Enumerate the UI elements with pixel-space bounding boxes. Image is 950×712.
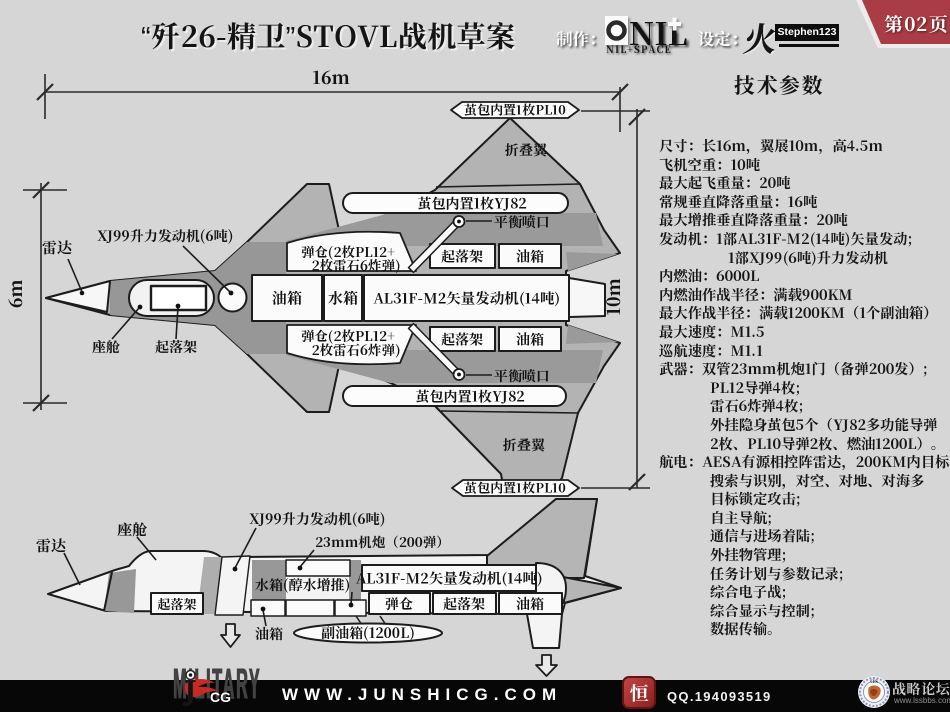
svg-text:XJ99升力发动机(6吨): XJ99升力发动机(6吨) — [249, 509, 385, 529]
svg-text:23mm机炮（200弹）: 23mm机炮（200弹） — [315, 531, 450, 551]
svg-text:座舱: 座舱 — [117, 519, 147, 540]
svg-text:起落架: 起落架 — [156, 594, 196, 613]
svg-text:茧包内置1枚PL10: 茧包内置1枚PL10 — [464, 100, 566, 119]
svg-text:NIL+SPACE: NIL+SPACE — [606, 42, 672, 56]
svg-text:座舱: 座舱 — [92, 337, 121, 357]
svg-text:折叠翼: 折叠翼 — [503, 435, 545, 455]
svg-text:起落架: 起落架 — [441, 247, 483, 267]
svg-text:CIS: CIS — [870, 679, 878, 685]
svg-text:油箱: 油箱 — [255, 624, 283, 644]
svg-text:茧包内置1枚PL10: 茧包内置1枚PL10 — [464, 478, 566, 497]
svg-text:AL31F-M2矢量发动机(14吨): AL31F-M2矢量发动机(14吨) — [355, 568, 543, 589]
svg-text:XJ99升力发动机(6吨): XJ99升力发动机(6吨) — [97, 226, 233, 246]
svg-text:水箱: 水箱 — [327, 288, 358, 309]
svg-text:起落架: 起落架 — [155, 337, 197, 357]
svg-text:折叠翼: 折叠翼 — [505, 140, 547, 160]
svg-text:茧包内置1枚YJ82: 茧包内置1枚YJ82 — [416, 387, 525, 407]
svg-text:水箱(醇水增推): 水箱(醇水增推) — [255, 575, 350, 595]
svg-text:2枚雷石6炸弹): 2枚雷石6炸弹) — [312, 255, 401, 275]
svg-text:16m: 16m — [312, 64, 349, 90]
svg-text:弹仓: 弹仓 — [385, 594, 413, 614]
svg-text:雷达: 雷达 — [36, 535, 66, 556]
svg-text:起落架: 起落架 — [443, 594, 485, 614]
svg-text:2枚雷石6炸弹): 2枚雷石6炸弹) — [312, 339, 401, 359]
svg-text:油箱: 油箱 — [272, 288, 302, 309]
svg-text:6m: 6m — [2, 280, 28, 309]
svg-text:副油箱(1200L): 副油箱(1200L) — [321, 623, 415, 643]
svg-text:茧包内置1枚YJ82: 茧包内置1枚YJ82 — [418, 194, 527, 214]
svg-text:油箱: 油箱 — [516, 594, 544, 614]
svg-text:油箱: 油箱 — [516, 247, 544, 267]
svg-text:平衡喷口: 平衡喷口 — [494, 212, 550, 232]
svg-text:雷达: 雷达 — [42, 237, 72, 258]
svg-text:油箱: 油箱 — [516, 330, 544, 350]
svg-text:平衡喷口: 平衡喷口 — [494, 366, 550, 386]
svg-text:起落架: 起落架 — [441, 330, 483, 350]
svg-text:AL31F-M2矢量发动机(14吨): AL31F-M2矢量发动机(14吨) — [373, 288, 561, 309]
